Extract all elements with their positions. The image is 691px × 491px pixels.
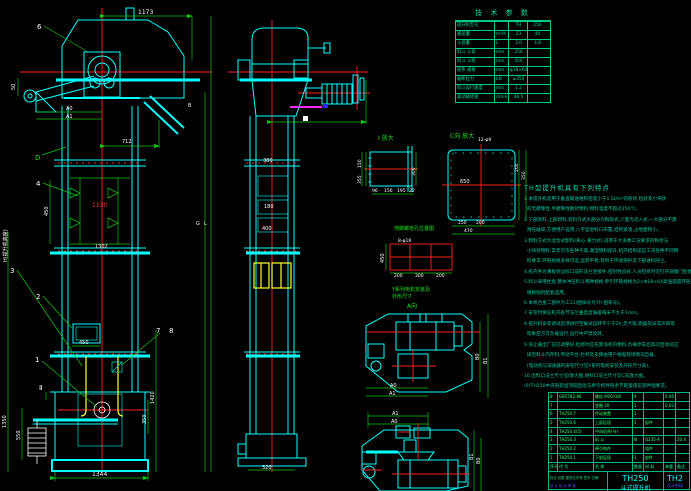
bom-item-qty xyxy=(633,428,644,436)
bom-item-code: TH250.7 xyxy=(558,410,594,418)
bom-item-material: 组件 xyxy=(644,445,664,453)
note-line: 的无磨琢性,半磨琢性散状物料,物料温度不超过250℃。 xyxy=(524,205,691,215)
balloon-2: 2 xyxy=(36,293,40,301)
dim-156: 156 xyxy=(384,188,393,194)
bom-item-weight: 0.03 xyxy=(664,402,676,410)
bom-item-qty: 1 xyxy=(633,402,644,410)
dim-355: 355 xyxy=(357,175,363,184)
note-line: 料要求,环链规格多样可选,运转平稳,有利于环境保护及下部进料除尘。 xyxy=(524,257,691,267)
bom-item-weight xyxy=(664,454,676,462)
dim-1302: 1302 xyxy=(95,244,108,250)
bom-item-qty xyxy=(633,445,644,453)
machine-name: 斗式提升机 xyxy=(608,483,663,491)
bom-item-name: 上部区段 xyxy=(594,419,633,427)
motor-dim-note-2: 外形尺寸 xyxy=(392,293,412,300)
dim-320: 320 xyxy=(262,465,272,471)
tech-row-unit: mm xyxy=(494,67,508,75)
tech-row-value-1: 1.2 xyxy=(508,85,527,93)
tech-row-label: 驱动轴转速 xyxy=(456,94,494,102)
dim-450-vertical: 450 xyxy=(44,206,50,216)
tech-row-value-1: 250 xyxy=(508,49,527,57)
dim-c-r350: 350 xyxy=(521,171,527,180)
tech-row-value-1: φ18×64 xyxy=(508,67,527,75)
dim-tv2-b1: B1 xyxy=(469,453,475,460)
bom-header-material: 材 料 xyxy=(644,463,664,471)
tech-row-unit xyxy=(494,22,508,30)
title-block: 标记 处数 更改文件号 签字 日期 设 计 校 对 审 核 工 艺 批 准 日 … xyxy=(549,472,689,491)
dim-350: 350 xyxy=(142,414,148,424)
bom-item-note xyxy=(676,410,689,418)
title-block-revision-grid: 标记 处数 更改文件号 签字 日期 设 计 校 对 审 核 工 艺 批 准 日 … xyxy=(549,472,608,491)
top-view-a xyxy=(366,314,488,398)
dim-tv1-b1: B1 xyxy=(483,357,489,364)
dim-letter-l: L xyxy=(204,221,207,227)
balloon-8: 8 xyxy=(169,327,173,335)
tech-row-value-2 xyxy=(527,58,546,66)
bom-item-code xyxy=(558,402,594,410)
feature-notes-block: TH型提升机具有下列特点 1.本提升机适用于垂直输送堆积密度小于1.5t/m³的… xyxy=(524,182,691,393)
dim-letter-g: G xyxy=(196,221,200,227)
tech-table-row: 料斗 斗距 mm 450 xyxy=(456,57,550,66)
dim-c-470: 470 xyxy=(464,228,473,234)
dim-g-300: 300 xyxy=(415,273,424,279)
bom-header-no: 序号 xyxy=(549,463,558,471)
bom-item-name: 下部区段 xyxy=(594,454,633,462)
technical-parameters-table: 技 术 参 数 提升机型号 TH 250 输送量 m³/h 23 40 斗容量 … xyxy=(455,8,551,103)
dim-a1: A1 xyxy=(66,114,73,120)
anchor-holes-note: 8-φ18 xyxy=(398,238,411,244)
tech-row-value-1: 450 xyxy=(508,58,527,66)
cad-drawing-canvas[interactable]: 1173 712 A0 A1 50 450 1130 1302 450 1344… xyxy=(0,0,691,491)
bom-item-code: TH250.6 xyxy=(558,419,594,427)
note-line: 7.安装时保证机壳各节法兰垂直度偏差每米不大于1mm。 xyxy=(524,309,691,319)
dim-g-450: 450 xyxy=(380,253,386,263)
detail-i-label: Ⅰ 放大 xyxy=(378,134,394,142)
bom-item-material xyxy=(644,393,664,401)
anchor-layout-caption: 地脚螺栓孔位置图 xyxy=(394,225,434,232)
dim-50: 50 xyxy=(11,84,17,90)
dim-1350: 1350 xyxy=(2,415,8,428)
bom-item-code: TH250.3 xyxy=(558,436,594,444)
tech-row-value-2 xyxy=(527,49,546,57)
bom-item-name: 牵引构件 xyxy=(594,445,633,453)
notes-title: TH型提升机具有下列特点 xyxy=(524,182,691,192)
detail-i-view xyxy=(362,146,418,194)
detail-c-holes: 12-φ9 xyxy=(478,137,491,143)
bom-row: 3 TH250.3 料 斗 N Q235-A 20.4 xyxy=(549,436,689,445)
tech-table-row: 破断拉力 kN ≥250 xyxy=(456,75,550,84)
note-line: 5.料斗采用栓接,整体冲压料斗两种规格,牵引环链规格为2×Φ18×64高强度圆环… xyxy=(524,278,691,288)
dim-c-200: 200 xyxy=(476,220,485,226)
bom-row: 7 垫圈 20 1 0.03 xyxy=(549,402,689,411)
bom-header-row: 序号 代 号 名 称 数量 材 料 单重 备注 xyxy=(549,463,689,472)
left-elevation-view xyxy=(8,8,212,481)
bom-item-name: 垫圈 20 xyxy=(594,402,633,410)
bom-item-name: 传动装置 xyxy=(594,410,633,418)
bom-header-qty: 数量 xyxy=(633,463,644,471)
bom-item-note xyxy=(676,419,689,427)
dim-300: 300 xyxy=(411,167,417,176)
dim-1344: 1344 xyxy=(92,471,107,478)
tech-table-row: 提升机型号 TH 250 xyxy=(456,21,550,30)
bom-item-no: 5 xyxy=(549,419,558,427)
bom-item-material: Q235-A xyxy=(644,436,664,444)
bom-row: 8 GB5782-86 螺栓 M20×80 4 0.06 xyxy=(549,393,689,402)
bom-item-weight xyxy=(664,445,676,453)
bom-item-material: 部件 xyxy=(644,454,664,462)
note-line: 小块状物料,常年可作各种干燥,潮湿物料提升,机壳结构适应工况各种不同物 xyxy=(524,247,691,257)
bom-item-no: 1 xyxy=(549,454,558,462)
note-line: 9.逆止器出厂前已调整好,检修时应先卸净机内物料,负载停车后再次启动前应 xyxy=(524,341,691,351)
bom-item-code: GB5782-86 xyxy=(558,393,594,401)
tech-row-label: 输送量 xyxy=(456,31,494,39)
dim-450-door: 450 xyxy=(79,340,89,346)
view-a-label: A向 xyxy=(407,302,417,310)
bom-item-code: TH250.2 xyxy=(558,445,594,453)
bom-item-note xyxy=(676,393,689,401)
tech-table-row: 驱动轴转速 r/min 48.5 xyxy=(456,93,550,102)
tech-row-unit: mm xyxy=(494,58,508,66)
tech-table-grid: 提升机型号 TH 250 输送量 m³/h 23 40 斗容量 L 3.0 4.… xyxy=(455,20,551,103)
bom-item-material xyxy=(644,428,664,436)
dim-150: 150 xyxy=(357,159,363,168)
bom-item-note xyxy=(676,402,689,410)
note-line: 预先破碎,方便用户选用,八字型进料口布置,结构紧凑,占地面积小。 xyxy=(524,226,691,236)
bom-row: 5 TH250.6 上部区段 1 部件 xyxy=(549,419,689,428)
dim-tv2-b0: B0 xyxy=(476,457,482,464)
motor-dim-note-1: Y系列电机安装及 xyxy=(391,286,430,293)
title-block-name-zone: TH250 斗式提升机 xyxy=(608,472,664,491)
tech-row-label: 料斗 斗距 xyxy=(456,58,494,66)
dim-g-200a: 200 xyxy=(394,273,403,279)
bom-item-weight xyxy=(664,436,676,444)
bom-item-note xyxy=(676,454,689,462)
dim-tv2-a0: A0 xyxy=(391,419,398,425)
tech-row-unit: kN xyxy=(494,76,508,84)
tech-row-unit: m³/h xyxy=(494,31,508,39)
note-line: 现象后方可负载运行,运行中严禁反转。 xyxy=(524,330,691,340)
note-line: 2.下部装料,上部卸料,装料方式大部分为掏取式,少量为流入式,一大部分不需 xyxy=(524,216,691,226)
bom-item-note: 20.4 xyxy=(676,436,689,444)
bom-item-code: TH250.1 xyxy=(558,454,594,462)
bom-item-no: 6 xyxy=(549,410,558,418)
dim-550: 550 xyxy=(16,430,22,440)
drawing-number: TH2 xyxy=(667,474,689,483)
dim-1420: 1420 xyxy=(150,391,156,404)
dim-c-r200: 200 xyxy=(514,163,520,172)
pickbox-cursor xyxy=(303,116,308,121)
bom-item-name: 中间机壳(节) xyxy=(594,428,633,436)
dim-96: 96 xyxy=(372,188,378,194)
dim-1173: 1173 xyxy=(138,9,153,16)
bom-item-weight xyxy=(664,410,676,418)
bom-item-no: 7 xyxy=(549,402,558,410)
dim-22: 22 xyxy=(409,188,415,194)
bom-row: 4 TH250.4(5) 中间机壳(节) xyxy=(549,428,689,437)
dim-650: 650 xyxy=(460,179,470,185)
bom-header-code: 代 号 xyxy=(558,463,594,471)
tech-row-value-1: TH xyxy=(508,22,527,30)
balloon-4: 4 xyxy=(36,180,41,188)
dim-tv1-b0: B0 xyxy=(475,353,481,360)
bom-item-no: 2 xyxy=(549,445,558,453)
signature-row-labels: 设 计 校 对 审 核 xyxy=(550,483,576,488)
tech-row-unit: L xyxy=(494,40,508,48)
tech-row-value-2 xyxy=(527,76,546,84)
tech-row-label: 破断拉力 xyxy=(456,76,494,84)
bom-row: 2 TH250.2 牵引构件 组件 xyxy=(549,445,689,454)
dim-712: 712 xyxy=(122,139,132,145)
bom-item-material xyxy=(644,410,664,418)
tech-table-row: 料斗 斗宽 mm 250 xyxy=(456,48,550,57)
bom-item-weight xyxy=(664,419,676,427)
note-line: 1.本提升机适用于垂直输送堆积密度小于1.5t/m³的粉状,粒状及小块状 xyxy=(524,195,691,205)
bom-item-name: 螺栓 M20×80 xyxy=(594,393,633,401)
bom-item-weight: 0.06 xyxy=(664,393,676,401)
tech-row-value-1: 48.5 xyxy=(508,94,527,102)
dim-a0: A0 xyxy=(66,106,73,112)
notes-lines: 1.本提升机适用于垂直输送堆积密度小于1.5t/m³的粉状,粒状及小块状 的无磨… xyxy=(524,195,691,393)
note-line: 规格随机配套选用。 xyxy=(524,289,691,299)
bom-rows: 8 GB5782-86 螺栓 M20×80 4 0.06 7 垫圈 20 1 0… xyxy=(549,393,689,463)
bom-item-name: 料 斗 xyxy=(594,436,633,444)
bom-item-qty: 1 xyxy=(633,454,644,462)
section-mark-ii: Ⅱ xyxy=(39,384,42,392)
dim-180: 180 xyxy=(264,204,274,210)
side-elevation-view xyxy=(228,20,370,472)
bom-item-note xyxy=(676,445,689,453)
bom-item-qty: 4 xyxy=(633,393,644,401)
tech-row-value-2 xyxy=(527,67,546,75)
note-line: 4.机壳件为薄板折边咬口成形法兰连接件,密封性良好,人员检修时可打开观察门检修除… xyxy=(524,268,691,278)
anchor-bolt-layout xyxy=(386,244,452,273)
overall-height-label: H(提升机高度) xyxy=(2,229,9,262)
tech-table-title: 技 术 参 数 xyxy=(455,8,551,18)
note-line: (电动机与减速器的安装尺寸见Y系列电机安装及外形尺寸表)。 xyxy=(524,362,691,372)
bom-item-no: 8 xyxy=(549,393,558,401)
balloon-1: 1 xyxy=(35,356,39,364)
tech-row-label: 斗容量 xyxy=(456,40,494,48)
tech-row-value-2: 250 xyxy=(527,22,546,30)
dim-tv1-a1: A1 xyxy=(389,391,396,397)
revision-row-labels: 标记 处数 更改文件号 签字 日期 xyxy=(550,475,598,480)
tech-row-label: 提升机型号 xyxy=(456,22,494,30)
tech-table-row: 斗容量 L 3.0 4.8 xyxy=(456,39,550,48)
tech-row-label: 料斗 斗宽 xyxy=(456,49,494,57)
bom-item-material xyxy=(644,402,664,410)
dim-tv1-a0: A0 xyxy=(390,383,397,389)
bom-item-no: 4 xyxy=(549,428,558,436)
dim-400: 400 xyxy=(262,226,272,232)
note-line: 8.提升机安装调试后须进行空载试运转不少于2h,无卡链,跑偏及异常声响等 xyxy=(524,320,691,330)
bom-row: 1 TH250.1 下部区段 1 部件 xyxy=(549,454,689,463)
bom-item-no: 3 xyxy=(549,436,558,444)
tech-row-value-1: 3.0 xyxy=(508,40,527,48)
bom-and-title-block: 8 GB5782-86 螺栓 M20×80 4 0.06 7 垫圈 20 1 0… xyxy=(548,392,690,490)
section-letter-d: D xyxy=(35,154,40,162)
balloon-7: 7 xyxy=(156,327,160,335)
dim-1130-red: 1130 xyxy=(92,202,107,209)
bom-header-note: 备注 xyxy=(676,463,689,471)
top-view-b xyxy=(362,412,481,491)
bom-row: 6 TH250.7 传动装置 1 xyxy=(549,410,689,419)
dim-c-250: 250 xyxy=(458,220,467,226)
tech-table-row: 输送量 m³/h 23 40 xyxy=(456,30,550,39)
note-line: 排空料斗内存料,传动平台,栏杆及支撑由用户根据现场情况自备。 xyxy=(524,351,691,361)
bom-item-code: TH250.4(5) xyxy=(558,428,594,436)
bom-item-note xyxy=(676,428,689,436)
dim-380: 380 xyxy=(263,158,273,164)
tech-row-unit: m/s xyxy=(494,85,508,93)
note-line: 3.卸料方式为混合式卸料(离心-重力式),适用于大多数工况要求的粉状与 xyxy=(524,237,691,247)
tech-row-value-1: 23 xyxy=(508,31,527,39)
note-line: 6.本机合金二部件为工11(图样号为TH 图系号)。 xyxy=(524,299,691,309)
bom-header-name: 名 称 xyxy=(594,463,633,471)
bom-item-qty: 1 xyxy=(633,410,644,418)
machine-model: TH250 xyxy=(608,474,663,483)
balloon-3: 3 xyxy=(10,267,14,275)
tech-row-value-2 xyxy=(527,85,546,93)
section-letter-b: B xyxy=(188,103,192,109)
dim-g-200b: 200 xyxy=(436,273,445,279)
tech-row-value-1: ≥250 xyxy=(508,76,527,84)
bom-item-qty: 1 xyxy=(633,419,644,427)
tech-row-label: 料斗运行速度 xyxy=(456,85,494,93)
tech-row-value-2: 4.8 xyxy=(527,40,546,48)
bom-item-material: 部件 xyxy=(644,419,664,427)
tech-table-row: 料斗运行速度 m/s 1.2 xyxy=(456,84,550,93)
tech-row-value-2: 40 xyxy=(527,31,546,39)
balloon-6: 6 xyxy=(37,23,42,31)
tech-row-unit: r/min xyxy=(494,94,508,102)
tech-row-label: 链条 规格 xyxy=(456,67,494,75)
detail-c-label: C向 放大 xyxy=(450,132,474,140)
design-stage-label: 设计阶段 xyxy=(667,483,689,489)
dim-tv2-a1: A1 xyxy=(392,411,399,417)
bom-item-qty: N xyxy=(633,436,644,444)
tech-row-unit: mm xyxy=(494,49,508,57)
bom-header-weight: 单重 xyxy=(664,463,676,471)
tech-table-row: 链条 规格 mm φ18×64 xyxy=(456,66,550,75)
tech-row-value-2 xyxy=(527,94,546,102)
note-line: 10.出料口法兰尺寸见Ⅰ放大图,进料口法兰尺寸见C向放大图。 xyxy=(524,372,691,382)
title-block-number-zone: TH2 设计阶段 xyxy=(664,472,689,491)
bom-item-weight xyxy=(664,428,676,436)
dim-195: 195 xyxy=(397,188,406,194)
